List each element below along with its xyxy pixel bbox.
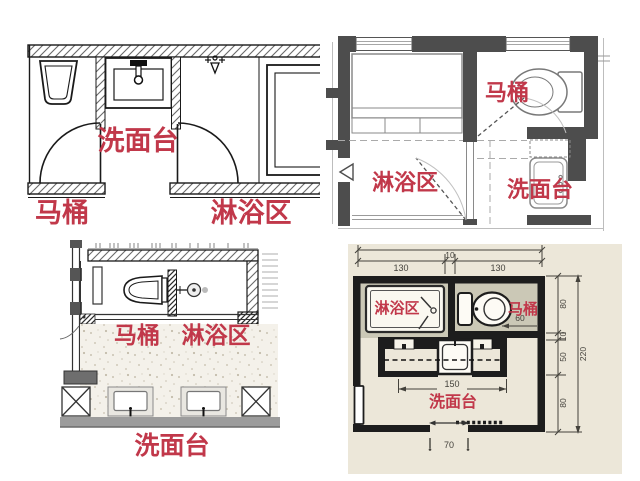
wall-stub-left (64, 371, 97, 384)
window-top-left (356, 38, 412, 51)
section-lines-right (262, 254, 278, 308)
label-toilet: 马桶 (114, 322, 160, 348)
label-sink: 洗面台 (98, 125, 179, 156)
sink-fixture (106, 58, 172, 108)
dimension-ticks-top (88, 243, 258, 249)
toilet-fixture (40, 61, 77, 104)
wall-pillar-right (172, 57, 181, 129)
toilet-fixture (458, 293, 511, 326)
partition-wall (168, 270, 177, 316)
label-sink: 洗面台 (134, 431, 209, 460)
counter-front-band (60, 417, 280, 428)
dim-top-left: 130 (393, 263, 408, 273)
label-sink: 洗面台 (507, 177, 573, 202)
dim-right-1: 80 (558, 299, 568, 309)
wall-top (88, 250, 258, 261)
label-toilet: 马桶 (485, 80, 529, 105)
plan-top-left: 洗面台 马桶 淋浴区 (0, 0, 320, 240)
dim-top-mid: 10 (445, 250, 455, 260)
dim-vanity-width: 150 (444, 379, 459, 389)
wall-left (60, 240, 82, 373)
sink-unit-2 (181, 387, 226, 417)
plan-bottom-left: 马桶 淋浴区 洗面台 (0, 240, 320, 481)
door-jamb-lines (467, 142, 474, 219)
label-shower: 淋浴区 (182, 322, 251, 348)
floorplan-collage: 洗面台 马桶 淋浴区 (0, 0, 640, 481)
shower-head-symbol (205, 56, 225, 73)
label-toilet: 马桶 (35, 198, 89, 228)
label-shower: 淋浴区 (211, 198, 292, 228)
wall-top (28, 45, 320, 57)
dim-right-total: 220 (578, 347, 588, 361)
bathtub (352, 54, 462, 133)
plan-top-right: 马桶 淋浴区 洗面台 (320, 0, 640, 240)
label-sink: 洗面台 (429, 392, 477, 411)
dim-right-3: 50 (558, 352, 568, 362)
door-leaf (355, 386, 364, 424)
wall-pillar-left (96, 57, 105, 129)
radiator (93, 267, 102, 304)
column-box-left (62, 387, 90, 416)
label-toilet: 马桶 (508, 300, 538, 318)
column-box-right (242, 387, 270, 416)
wall-right (247, 261, 258, 315)
direction-triangle-marker (340, 164, 353, 180)
label-shower: 淋浴区 (374, 299, 419, 317)
dim-right-2: 10 (558, 332, 568, 342)
wall-bottom (28, 183, 320, 198)
dim-door-width: 70 (444, 440, 454, 450)
dim-top-right: 130 (490, 263, 505, 273)
label-shower: 淋浴区 (372, 170, 438, 195)
plan-bottom-right: 130 10 130 80 10 50 80 220 60 150 70 淋浴区… (320, 240, 640, 481)
sink-unit-1 (108, 387, 153, 417)
dim-right-4: 80 (558, 398, 568, 408)
shower-tub (267, 65, 320, 175)
window-top-right (506, 38, 570, 51)
toilet-fixture (124, 276, 167, 304)
shower-head-symbol (177, 284, 209, 297)
